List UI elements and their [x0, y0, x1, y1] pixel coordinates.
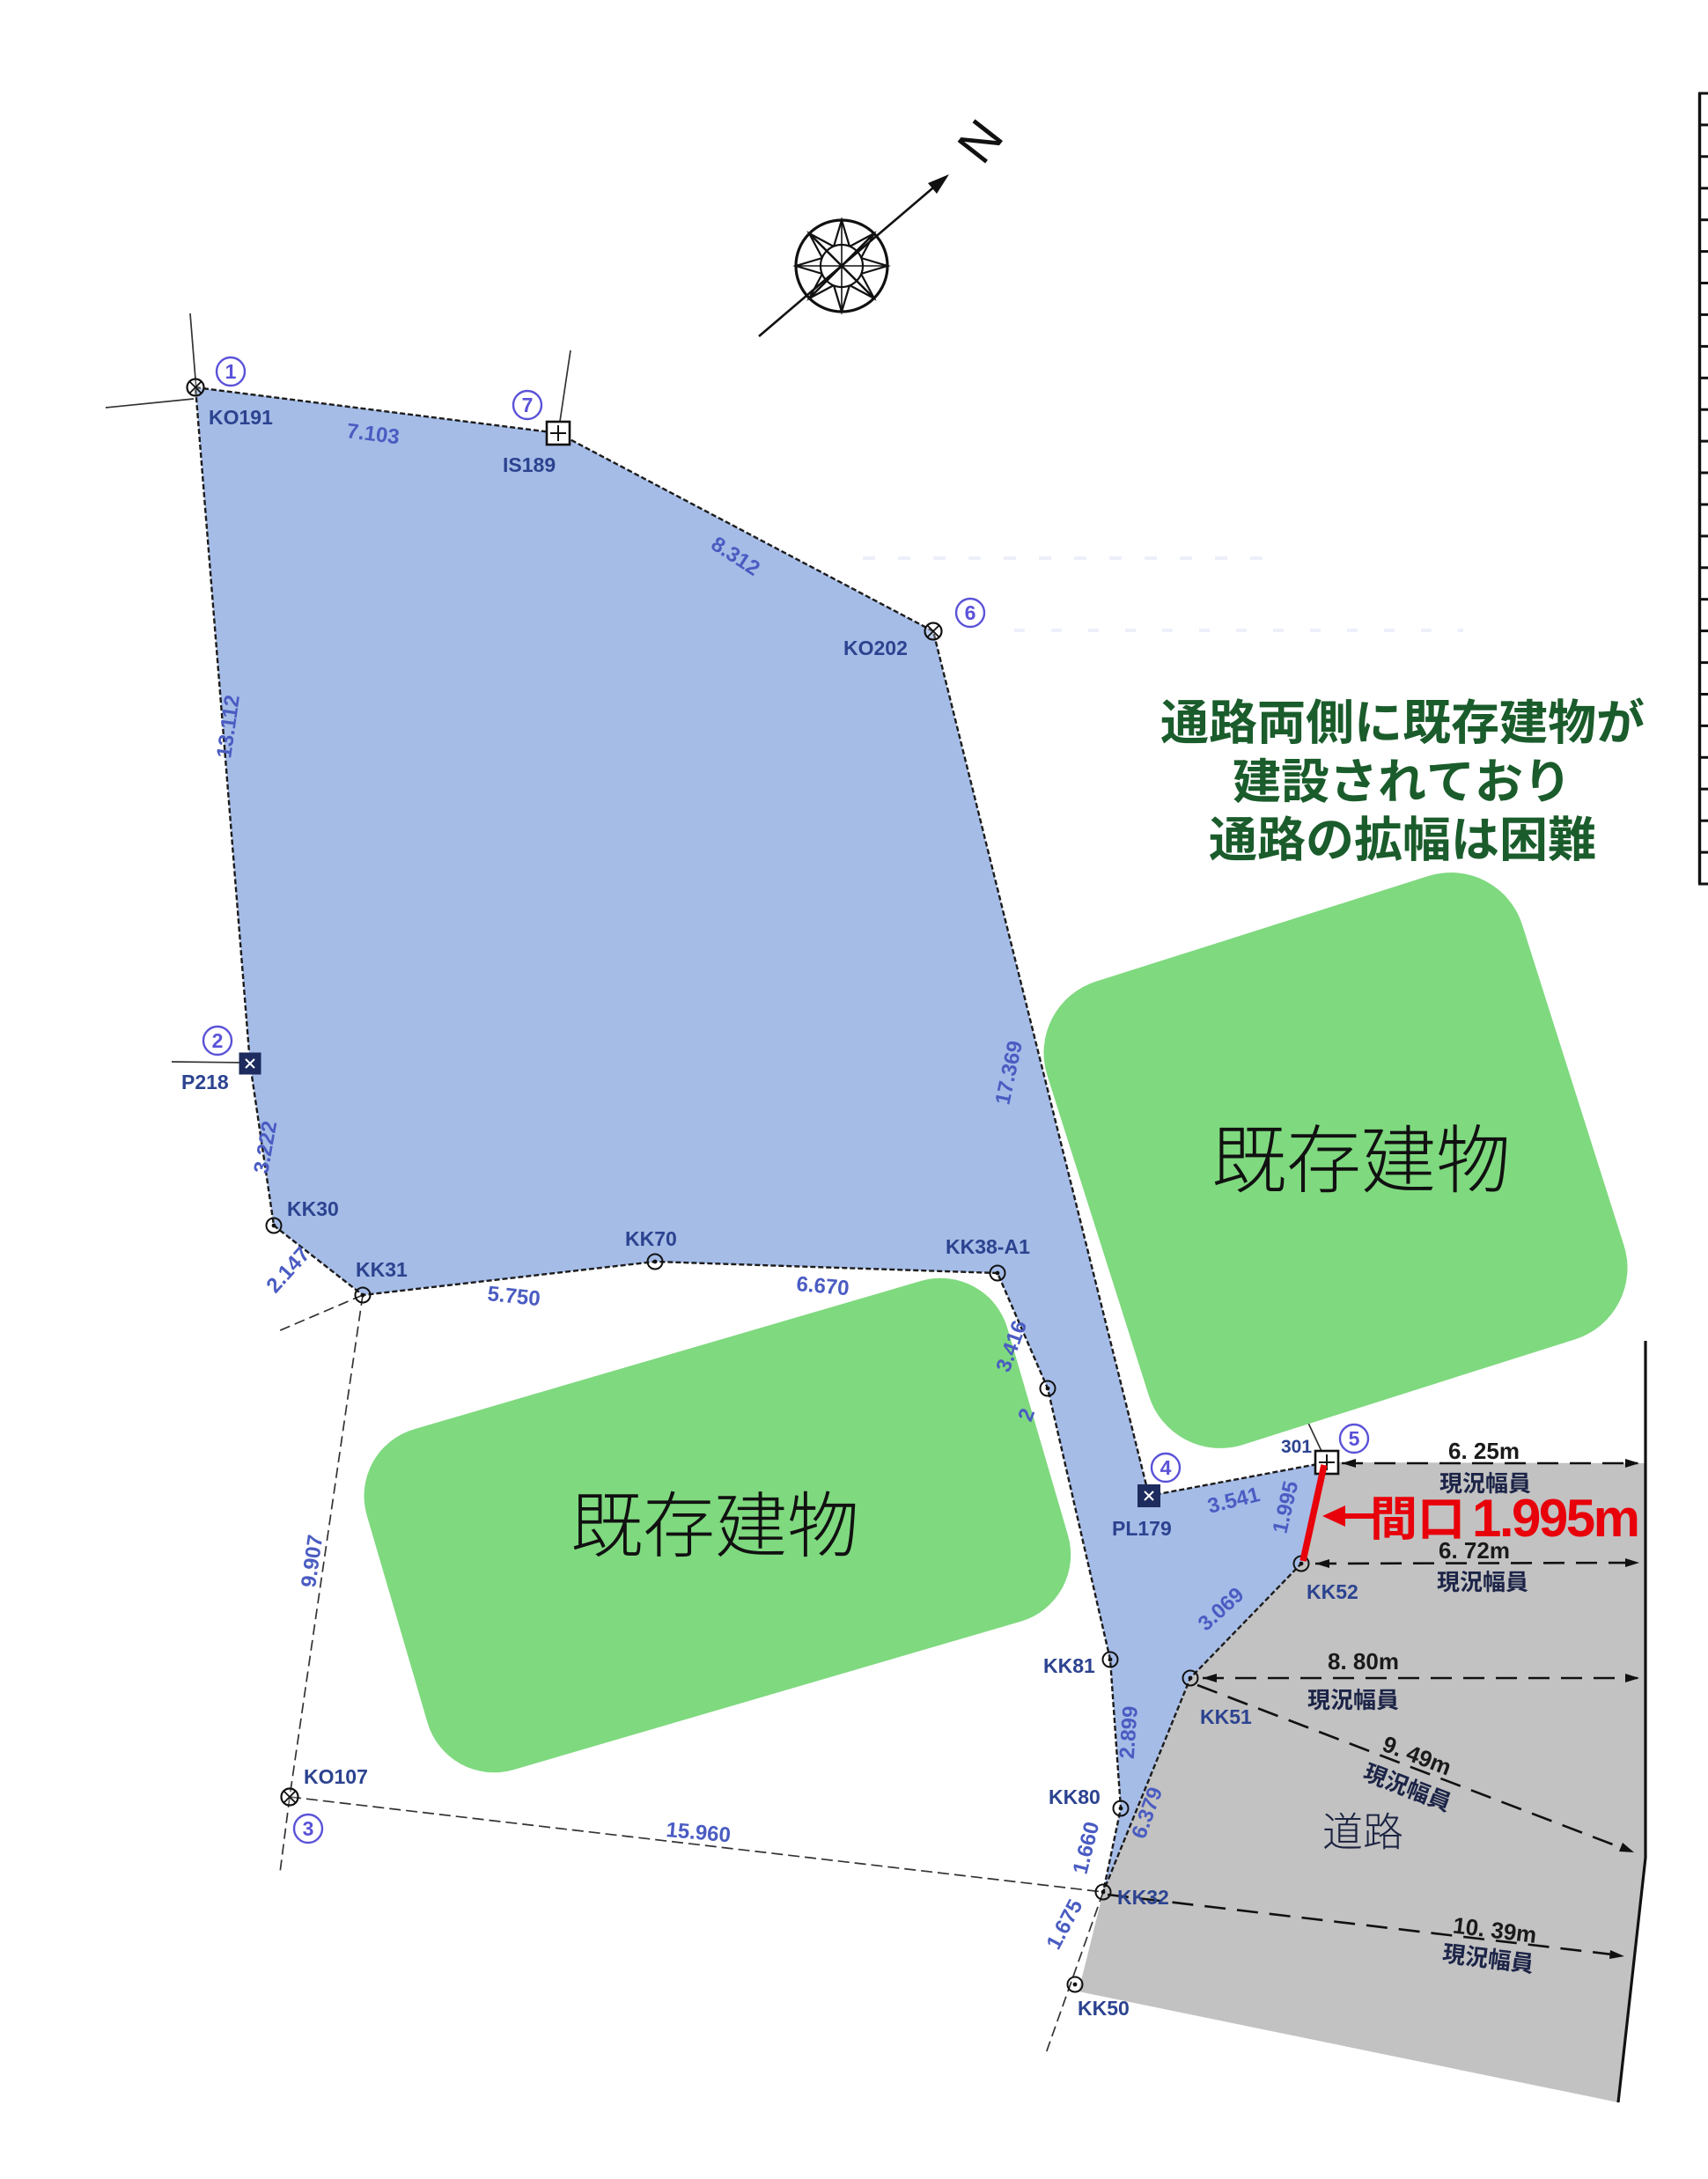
svg-text:KK80: KK80: [1049, 1785, 1101, 1808]
svg-text:KK32: KK32: [1117, 1886, 1169, 1909]
svg-text:KK70: KK70: [625, 1227, 677, 1250]
svg-text:KK50: KK50: [1078, 1997, 1130, 2020]
svg-text:7: 7: [522, 394, 534, 416]
svg-text:8. 80m: 8. 80m: [1328, 1648, 1399, 1675]
svg-text:2: 2: [212, 1029, 224, 1052]
svg-text:4: 4: [1160, 1456, 1172, 1479]
svg-text:KO107: KO107: [304, 1765, 368, 1788]
svg-text:6: 6: [965, 601, 976, 624]
svg-text:IS189: IS189: [503, 453, 556, 476]
svg-text:301: 301: [1281, 1437, 1312, 1457]
svg-text:KK30: KK30: [287, 1197, 339, 1220]
svg-text:PL179: PL179: [1112, 1517, 1172, 1540]
svg-text:5: 5: [1349, 1427, 1360, 1450]
svg-text:KO191: KO191: [209, 406, 273, 429]
svg-text:KK38-A1: KK38-A1: [946, 1235, 1030, 1258]
svg-text:KK31: KK31: [356, 1258, 408, 1281]
svg-text:KO202: KO202: [843, 637, 908, 659]
svg-text:6.670: 6.670: [795, 1272, 850, 1300]
svg-text:KK52: KK52: [1307, 1580, 1358, 1603]
svg-text:1: 1: [225, 360, 237, 383]
svg-text:2.899: 2.899: [1115, 1705, 1143, 1760]
svg-text:6. 72m: 6. 72m: [1439, 1537, 1510, 1564]
svg-text:6. 25m: 6. 25m: [1448, 1438, 1520, 1464]
svg-text:3: 3: [303, 1817, 314, 1840]
svg-text:KK81: KK81: [1043, 1654, 1095, 1677]
svg-text:P218: P218: [181, 1071, 229, 1093]
svg-text:KK51: KK51: [1200, 1705, 1252, 1728]
